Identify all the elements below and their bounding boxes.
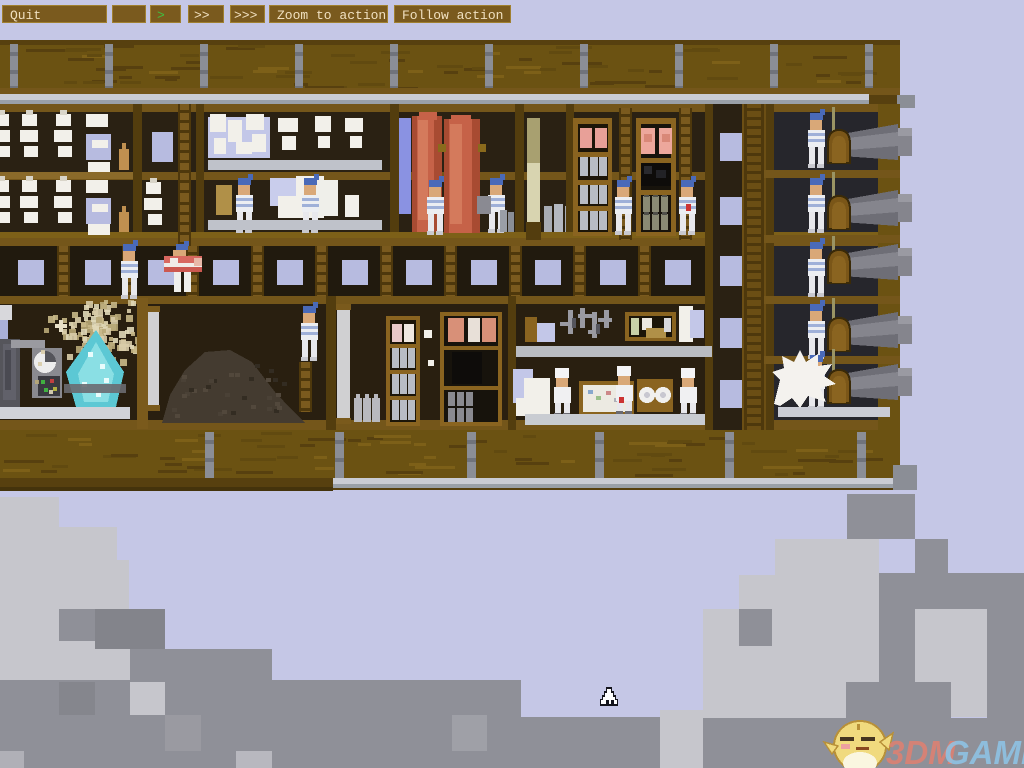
svg-text:>>>: >>> xyxy=(234,8,258,23)
svg-text:>>: >> xyxy=(194,8,210,23)
svg-text:>: > xyxy=(157,8,165,23)
svg-text:GAME: GAME xyxy=(944,734,1024,768)
svg-text:Zoom to action: Zoom to action xyxy=(277,8,386,23)
svg-text:Quit: Quit xyxy=(10,8,41,23)
svg-text:Follow action: Follow action xyxy=(402,8,503,23)
